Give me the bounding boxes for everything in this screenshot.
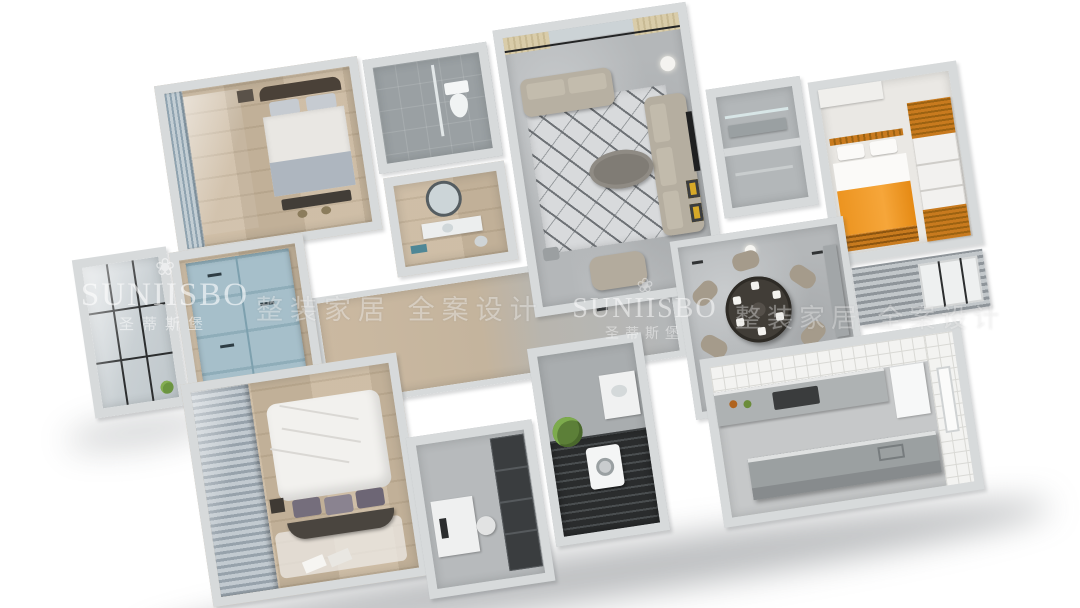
- stool: [474, 235, 488, 248]
- office-chair: [475, 515, 497, 537]
- pillow-patterned: [292, 496, 322, 518]
- armchair: [588, 250, 648, 292]
- fridge: [890, 362, 931, 418]
- seat-cushion: [662, 190, 683, 230]
- vanity-cabinet: [599, 370, 641, 419]
- seat-cushion: [649, 103, 670, 143]
- dining-chair: [689, 277, 721, 309]
- room-office: [406, 419, 556, 599]
- room-vanity-washroom: [383, 160, 518, 277]
- glass-panel: [918, 256, 984, 310]
- louvered-panel: [852, 249, 991, 326]
- desk: [728, 117, 787, 137]
- round-mirror: [423, 178, 464, 219]
- toilet-bowl: [448, 92, 469, 118]
- towel: [410, 244, 427, 254]
- double-bed: [258, 76, 359, 221]
- seat-cushion: [567, 73, 607, 94]
- stool: [297, 209, 308, 218]
- wardrobe-slats-bottom: [923, 204, 971, 242]
- room-entry-study-nook: [706, 76, 819, 219]
- side-table: [542, 246, 560, 261]
- wardrobe-shelf-line: [494, 465, 528, 472]
- dining-chair: [787, 262, 819, 292]
- wardrobe-slats-top: [907, 97, 956, 139]
- dark-wardrobe: [490, 434, 543, 572]
- monitor: [439, 518, 449, 539]
- shower-glass: [431, 65, 445, 137]
- nightstand: [237, 89, 255, 103]
- round-dining-table: [721, 272, 796, 347]
- washing-machine: [585, 444, 625, 491]
- dining-chair: [730, 248, 761, 273]
- shelf: [735, 165, 793, 177]
- stool: [321, 206, 332, 215]
- sideboard: [823, 244, 849, 337]
- room-bedroom-1: [154, 56, 383, 259]
- washer-door: [595, 457, 615, 477]
- desk: [430, 496, 480, 558]
- wardrobe-handle: [207, 272, 221, 277]
- slat-wardrobe: [907, 97, 971, 242]
- basin: [610, 384, 628, 398]
- floor-lamp: [659, 55, 676, 72]
- art-frame: [686, 179, 701, 199]
- double-bed: [263, 388, 404, 556]
- jar: [729, 400, 738, 409]
- floorplan-render-page: { "meta": { "description": "Photoreal 3D…: [0, 0, 1080, 608]
- place-setting: [751, 281, 760, 290]
- desk: [818, 81, 884, 108]
- cooktop: [772, 386, 820, 411]
- seat-cushion: [656, 147, 677, 187]
- wardrobe-panel-line: [920, 184, 964, 192]
- island-counter: [748, 431, 942, 501]
- seat-cushion: [526, 79, 566, 100]
- room-bathroom: [362, 42, 503, 174]
- wardrobe-panel-line: [916, 158, 960, 166]
- nightstand: [269, 498, 285, 514]
- table-centerpiece: [751, 301, 767, 317]
- sink: [877, 444, 905, 462]
- apartment-floorplan: [130, 0, 1080, 608]
- art-frame: [689, 203, 704, 223]
- floor-dash-marks: [692, 260, 703, 265]
- pillow: [836, 143, 865, 161]
- divider-wall: [723, 137, 800, 156]
- room-laundry-utility: [527, 332, 670, 547]
- room-master-bedroom: [180, 353, 429, 608]
- pillow: [869, 138, 898, 156]
